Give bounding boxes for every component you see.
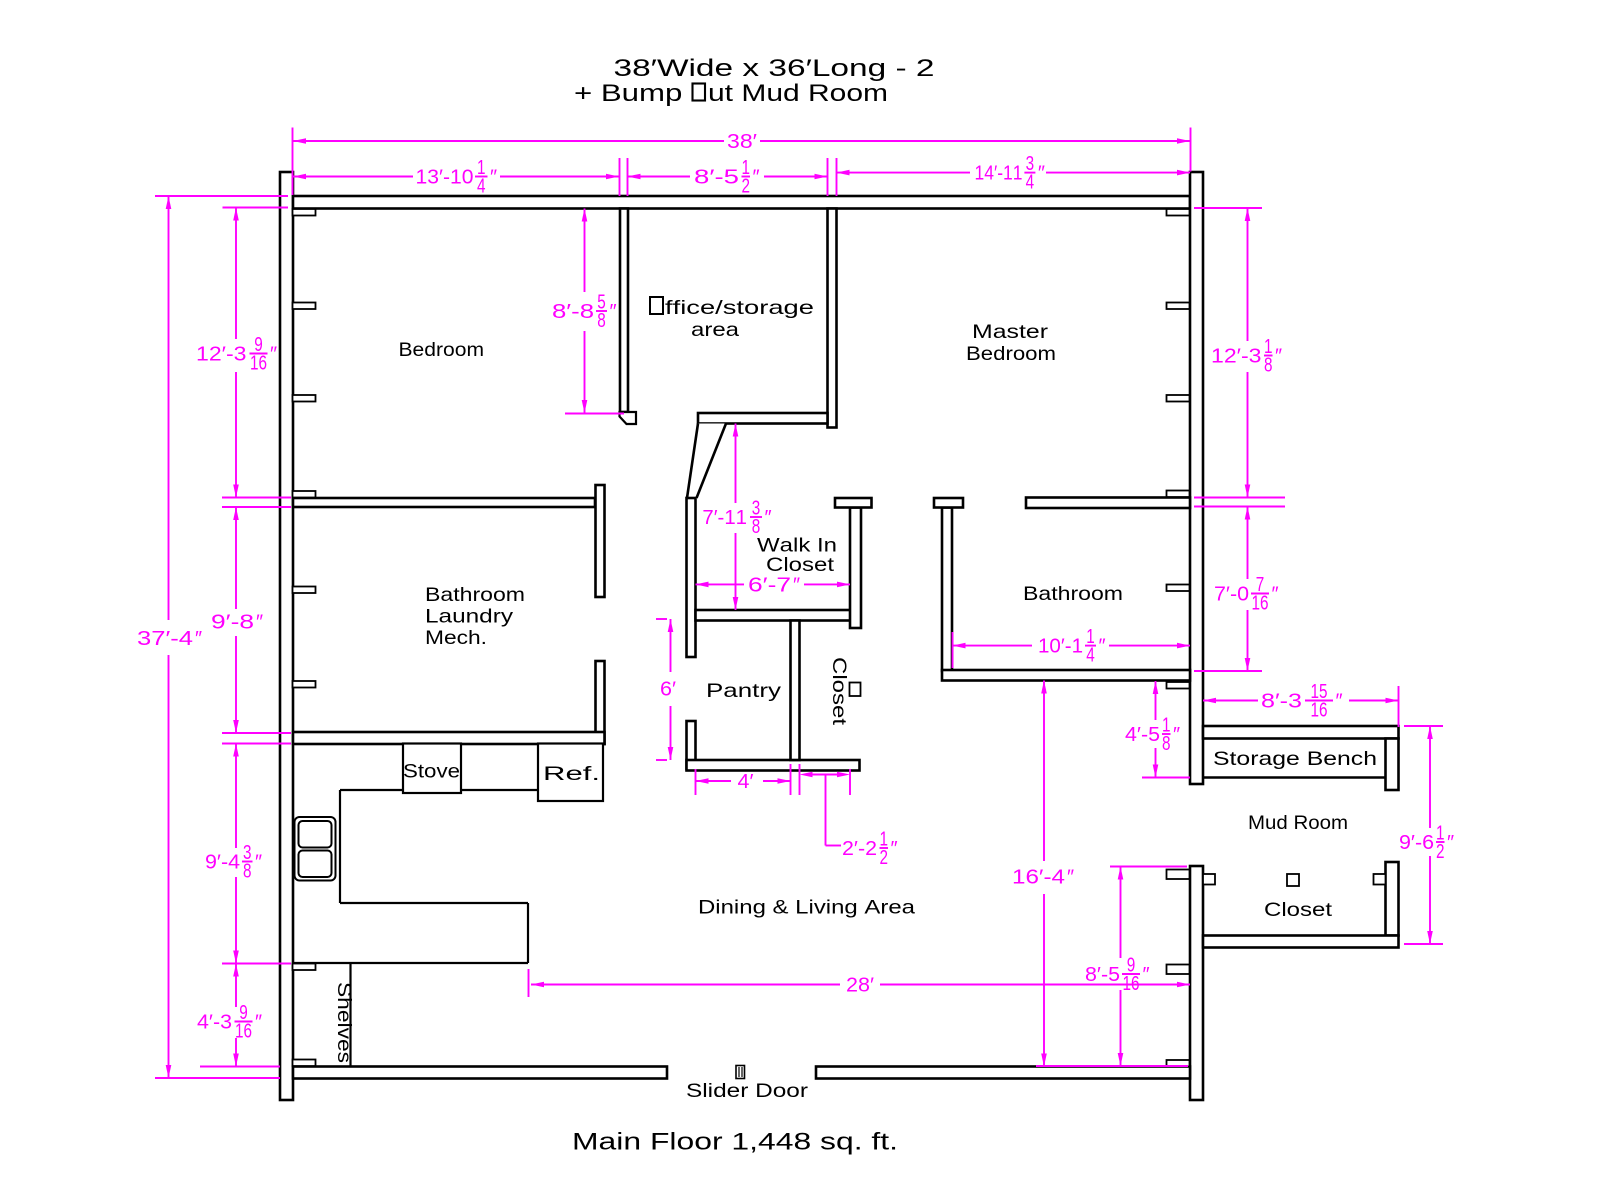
svg-text:″: ″	[753, 167, 760, 189]
svg-text:Dining & Living Area: Dining & Living Area	[698, 897, 915, 919]
svg-text:38′: 38′	[727, 131, 757, 153]
svg-text:14′-11: 14′-11	[975, 163, 1023, 185]
svg-text:7′-11: 7′-11	[702, 507, 747, 529]
svg-text:″: ″	[793, 574, 800, 596]
svg-text:8: 8	[597, 310, 606, 332]
svg-text:12′-3: 12′-3	[1211, 346, 1262, 368]
svg-text:Bedroom: Bedroom	[966, 343, 1056, 365]
svg-text:9′-6: 9′-6	[1399, 832, 1434, 854]
svg-text:″: ″	[1173, 724, 1180, 746]
svg-text:Bathroom: Bathroom	[425, 584, 525, 606]
svg-text:6′: 6′	[660, 679, 676, 701]
svg-text:″: ″	[270, 344, 277, 366]
svg-text:8: 8	[1264, 355, 1273, 377]
svg-text:Ref.: Ref.	[543, 763, 600, 785]
svg-text:″: ″	[195, 628, 202, 650]
svg-text:13′-10: 13′-10	[416, 167, 474, 189]
svg-text:8: 8	[243, 861, 252, 883]
svg-text:Laundry: Laundry	[425, 606, 513, 628]
svg-text:7′-0: 7′-0	[1214, 584, 1249, 606]
svg-text:8′-5: 8′-5	[694, 167, 739, 189]
svg-text:″: ″	[1143, 964, 1150, 986]
svg-text:2: 2	[880, 847, 889, 869]
svg-text:4: 4	[477, 176, 486, 198]
svg-text:28′: 28′	[846, 975, 874, 997]
svg-text:″: ″	[1272, 584, 1279, 606]
svg-text:8′-3: 8′-3	[1261, 691, 1302, 713]
svg-text:″: ″	[1336, 691, 1343, 713]
svg-text:16: 16	[250, 353, 267, 375]
svg-text:Closet: Closet	[766, 554, 835, 576]
svg-text:4: 4	[1026, 172, 1035, 194]
svg-text:16: 16	[1252, 593, 1269, 615]
svg-text:Shelves: Shelves	[333, 982, 355, 1063]
svg-text:Bathroom: Bathroom	[1023, 583, 1123, 605]
svg-text:9′-4: 9′-4	[205, 852, 240, 874]
svg-text:ffice/storage: ffice/storage	[665, 297, 814, 319]
svg-text:″: ″	[610, 301, 617, 323]
svg-text:8′-5: 8′-5	[1085, 964, 1120, 986]
svg-text:10′-1: 10′-1	[1038, 636, 1083, 658]
svg-text:2: 2	[1436, 841, 1445, 863]
svg-text:″: ″	[490, 167, 497, 189]
svg-text:″: ″	[1275, 346, 1282, 368]
svg-text:Mud Room: Mud Room	[1248, 812, 1348, 834]
svg-text:16: 16	[1311, 700, 1328, 722]
svg-text:″: ″	[1099, 636, 1106, 658]
svg-text:8: 8	[1162, 733, 1171, 755]
svg-text:2′-2: 2′-2	[842, 838, 877, 860]
svg-text:Stove: Stove	[403, 761, 460, 783]
svg-text:9′-8: 9′-8	[211, 612, 254, 634]
svg-text:ut Mud Room: ut Mud Room	[708, 80, 888, 107]
svg-text:2: 2	[742, 176, 751, 198]
svg-text:Closet: Closet	[828, 657, 850, 726]
svg-text:″: ″	[1038, 163, 1045, 185]
svg-text:16: 16	[235, 1021, 252, 1043]
svg-text:Bedroom: Bedroom	[399, 339, 485, 361]
svg-text:″: ″	[255, 852, 262, 874]
svg-text:Mech.: Mech.	[425, 627, 487, 649]
svg-text:Storage Bench: Storage Bench	[1213, 748, 1377, 770]
svg-text:″: ″	[255, 1012, 262, 1034]
svg-text:Pantry: Pantry	[706, 680, 781, 702]
svg-text:Closet: Closet	[1264, 899, 1333, 921]
svg-text:38′Wide x 36′Long - 2: 38′Wide x 36′Long - 2	[614, 55, 935, 82]
svg-text:Slider Door: Slider Door	[686, 1080, 809, 1102]
svg-text:16′-4: 16′-4	[1012, 867, 1065, 889]
svg-text:4′-5: 4′-5	[1125, 724, 1160, 746]
svg-text:4: 4	[1086, 645, 1095, 667]
svg-text:37′-4: 37′-4	[137, 628, 193, 650]
svg-text:Master: Master	[972, 321, 1049, 343]
svg-text:area: area	[691, 319, 739, 341]
svg-text:12′-3: 12′-3	[196, 344, 247, 366]
svg-text:″: ″	[765, 507, 772, 529]
svg-text:+ Bump: + Bump	[574, 80, 691, 107]
svg-text:″: ″	[891, 838, 898, 860]
svg-text:6′-7: 6′-7	[748, 574, 791, 596]
svg-text:Main Floor 1,448 sq. ft.: Main Floor 1,448 sq. ft.	[572, 1129, 898, 1156]
svg-text:4′: 4′	[738, 771, 754, 793]
svg-text:8′-8: 8′-8	[552, 301, 594, 323]
svg-text:″: ″	[1067, 867, 1074, 889]
svg-text:4′-3: 4′-3	[197, 1012, 232, 1034]
svg-text:″: ″	[256, 612, 263, 634]
svg-text:″: ″	[1447, 832, 1454, 854]
